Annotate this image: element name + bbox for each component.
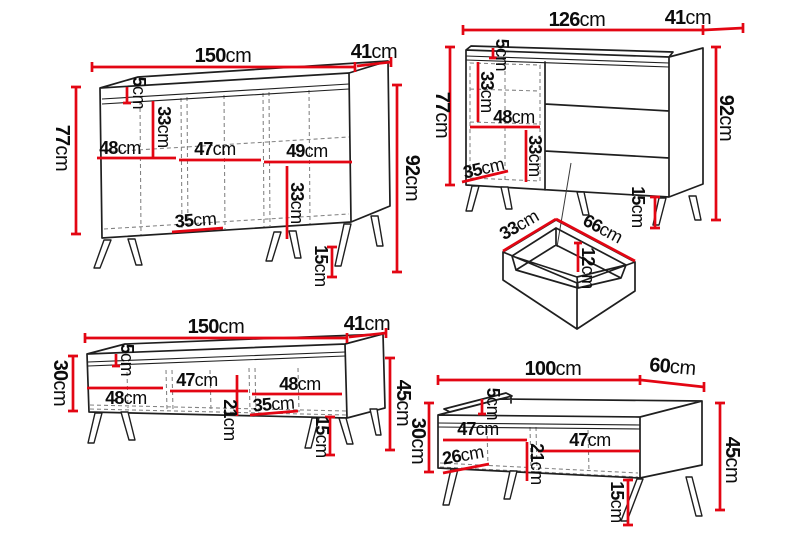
dim-label-tv-depth: 41cm [344,313,391,335]
dim-label-chest-top-offset: 5cm [492,39,512,71]
dim-label-table-width: 100cm [525,358,582,380]
dim-label-sideboard-body-height: 77cm [51,125,73,172]
dim-label-table-leg: 15cm [607,481,627,523]
dim-label-sideboard-total-height: 92cm [401,155,423,202]
dim-label-sideboard-top-offset: 5cm [129,77,149,109]
dim-label-chest-bottom-inner-width: 35cm [461,154,506,183]
dim-label-table-front-height: 30cm [407,418,429,465]
dim-label-sideboard-lower-inner-width: 35cm [174,209,217,232]
dim-label-chest-body-height: 77cm [431,92,453,139]
dim-label-tv-top-offset: 5cm [117,344,137,376]
dim-label-chest-leg: 15cm [628,186,648,228]
dim-label-table-section-right: 47cm [569,430,611,450]
dim-label-sideboard-upper-inner: 33cm [154,106,174,148]
dim-label-chest-inner-width: 48cm [493,107,535,127]
dim-label-tv-section-left: 48cm [105,388,147,408]
dim-label-sideboard-section-left: 48cm [99,138,141,158]
dim-label-tv-section-middle: 47cm [176,370,218,390]
dim-label-chest-width: 126cm [549,9,606,31]
dim-label-sideboard-lower-inner-height: 33cm [287,182,307,224]
dim-label-chest-total-height: 92cm [715,95,737,142]
dim-label-tv-inner-height: 21cm [220,399,240,441]
dim-label-table-depth: 60cm [648,354,696,380]
dim-label-chest-depth: 41cm [665,7,712,29]
dim-label-table-top-offset: 5cm [483,388,503,420]
dim-label-drawer-side: 33cm [496,206,542,244]
dim-label-tv-section-right: 48cm [279,374,321,394]
sideboard-diagram: 150cm 41cm 77cm 5cm 33cm 48cm 47cm 49cm … [51,41,423,287]
dim-label-tv-lower-inner-width: 35cm [252,393,295,416]
dim-label-table-total-height: 45cm [721,437,743,484]
dim-label-tv-width: 150cm [188,316,245,338]
drawer-diagram: 33cm 66cm 12cm [496,206,635,329]
coffee-table-diagram: 100cm 60cm 30cm 5cm 47cm 47cm 26cm 21cm … [407,354,743,525]
dim-line-table-depth [641,380,704,392]
dim-label-drawer-front: 66cm [580,210,626,247]
coffee-table-legs [443,469,702,521]
dim-label-sideboard-leg: 15cm [311,245,331,287]
sideboard-legs [94,216,383,268]
dim-label-tv-leg: 15cm [312,416,332,458]
dim-line-sideboard-total-height [392,85,402,272]
dim-label-table-inner-height: 21cm [527,443,547,485]
dim-label-sideboard-section-right: 49cm [286,141,328,161]
dim-label-chest-lower-inner: 33cm [525,135,545,177]
furniture-dimension-sheet: 150cm 41cm 77cm 5cm 33cm 48cm 47cm 49cm … [0,0,800,533]
dim-label-sideboard-width: 150cm [195,45,252,67]
chest-diagram: 126cm 41cm 77cm 5cm 33cm 48cm 33cm 35cm … [431,7,743,247]
diagram-canvas: 150cm 41cm 77cm 5cm 33cm 48cm 47cm 49cm … [0,0,800,533]
dim-label-tv-front-height: 30cm [49,360,71,407]
dim-label-drawer-depth: 12cm [578,247,598,289]
dim-label-table-section-left: 47cm [457,419,499,439]
tv-stand-diagram: 150cm 41cm 30cm 5cm 47cm 48cm 48cm 35cm … [49,313,414,458]
dim-label-sideboard-section-middle: 47cm [194,139,236,159]
dim-label-sideboard-depth: 41cm [351,41,398,63]
